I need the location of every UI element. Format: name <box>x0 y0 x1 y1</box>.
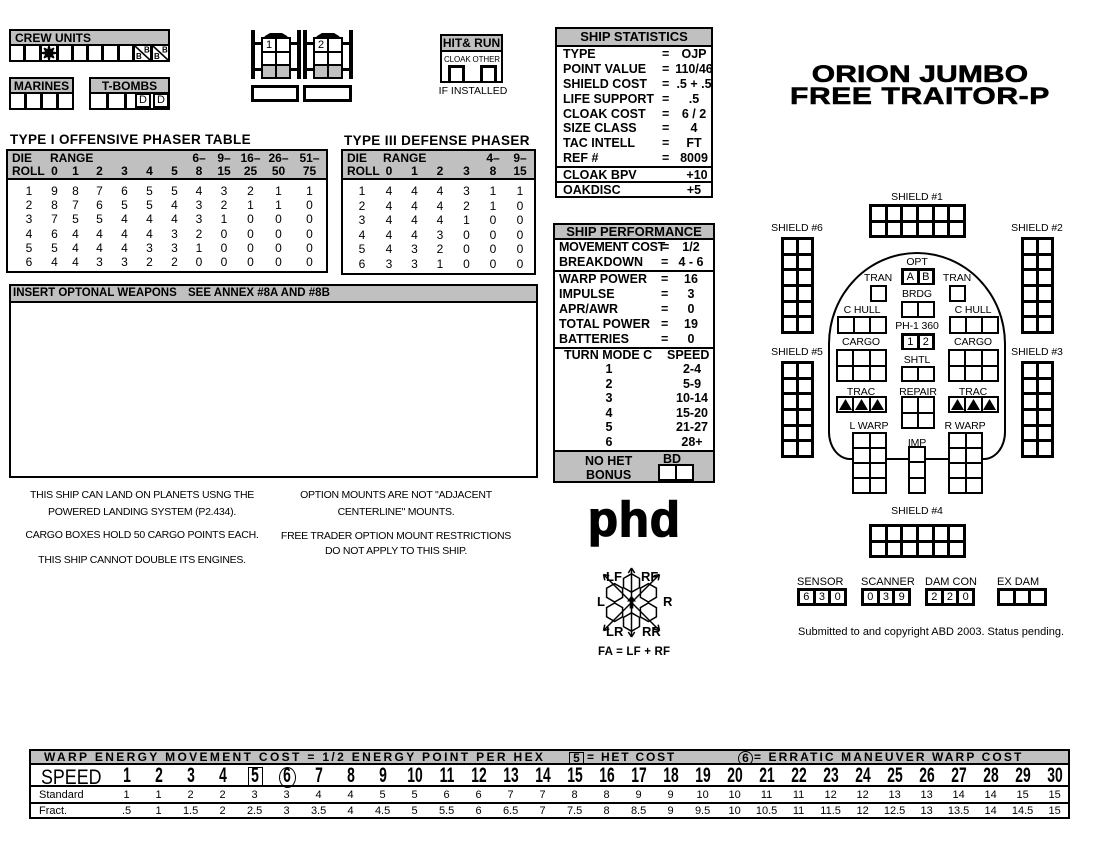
svg-text:B: B <box>154 52 160 60</box>
svg-text:B: B <box>136 52 142 60</box>
svg-text:B: B <box>144 46 150 55</box>
svg-text:B: B <box>162 46 168 55</box>
